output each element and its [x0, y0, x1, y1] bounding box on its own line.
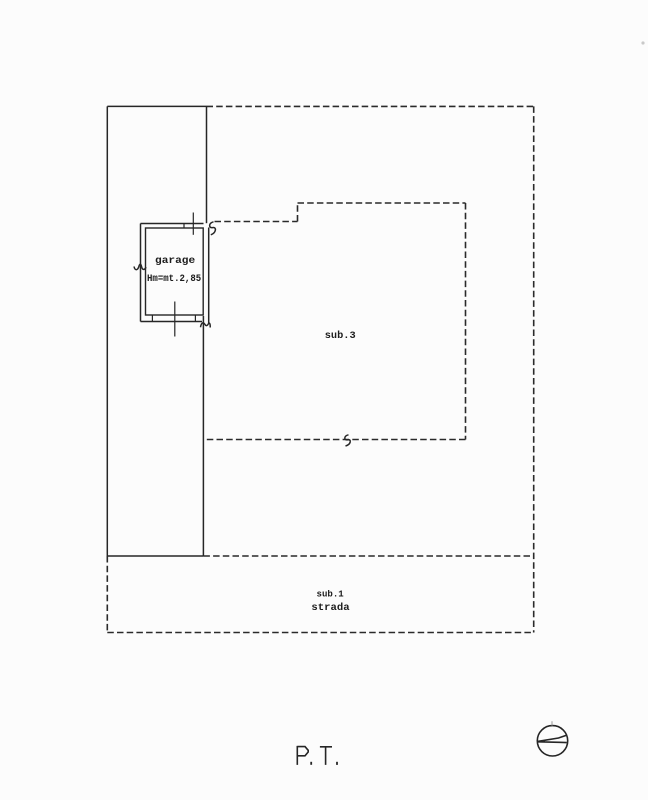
- svg-text:sub.1: sub.1: [317, 589, 344, 600]
- svg-text:garage: garage: [155, 255, 195, 267]
- svg-text:sub.3: sub.3: [325, 330, 356, 342]
- svg-text:Hm=mt.2,85: Hm=mt.2,85: [147, 274, 201, 285]
- svg-text:strada: strada: [311, 602, 349, 614]
